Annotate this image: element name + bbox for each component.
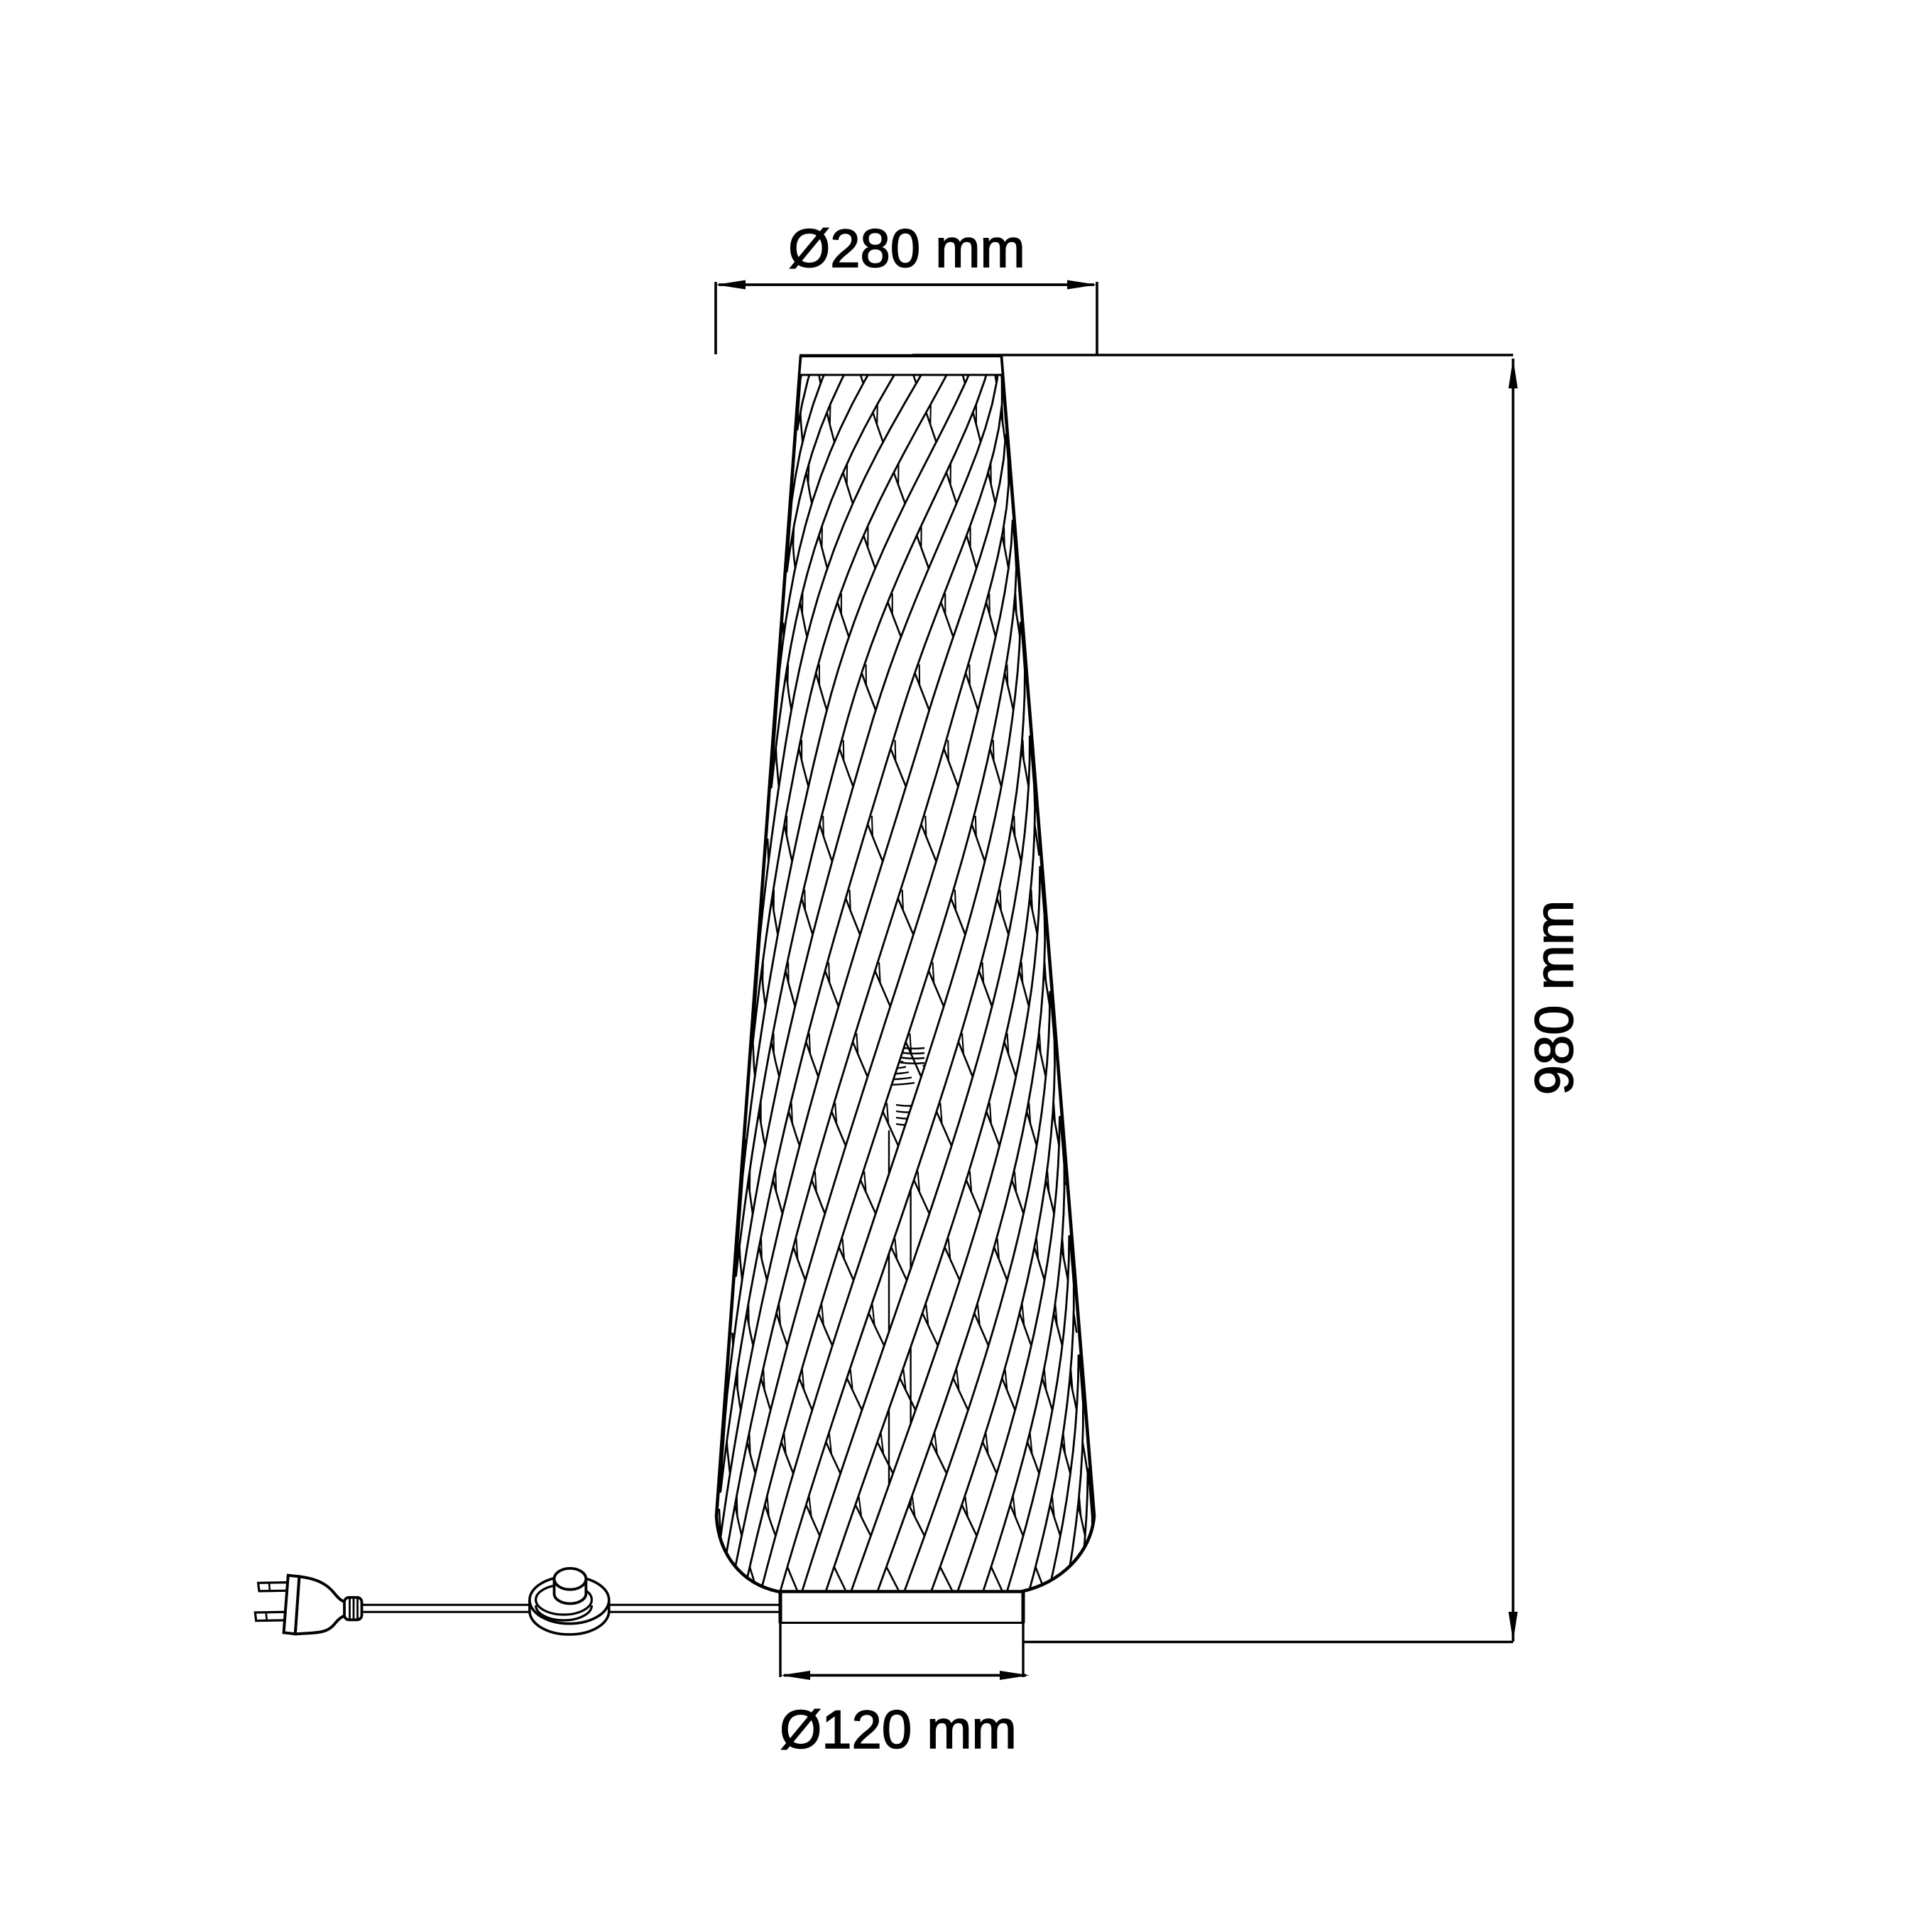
svg-text:980 mm: 980 mm [1524,900,1585,1096]
svg-text:Ø280 mm: Ø280 mm [788,219,1025,279]
svg-text:Ø120 mm: Ø120 mm [780,1700,1017,1760]
